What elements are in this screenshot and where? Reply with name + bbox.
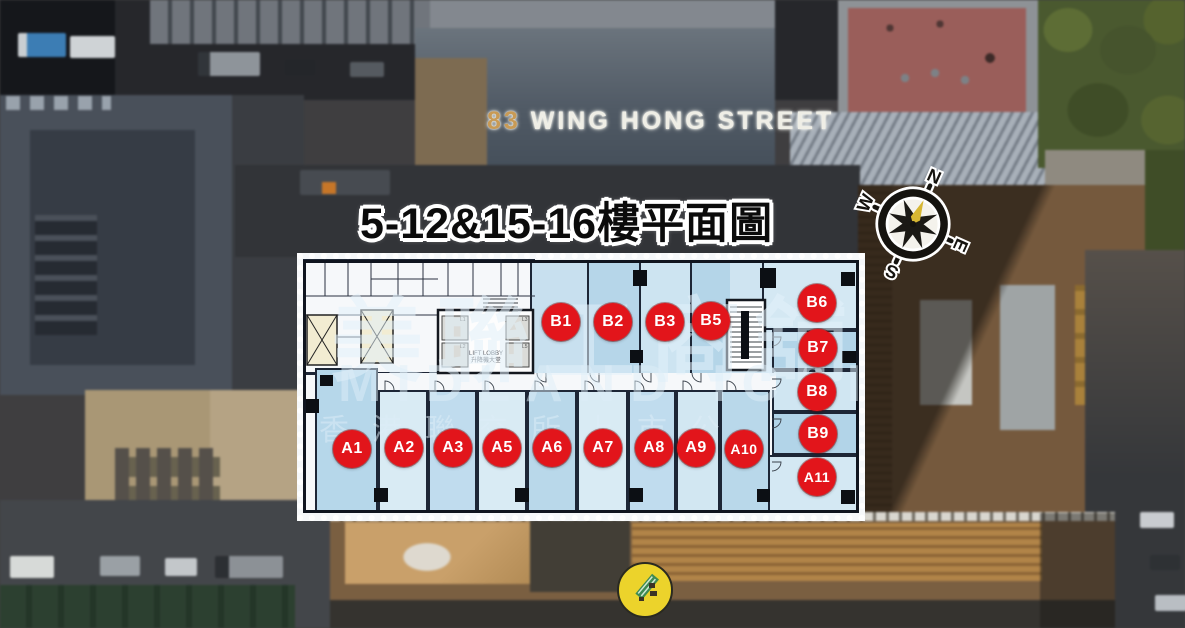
unit-badge-a10: A10 (725, 430, 763, 468)
photo-whs-scaffold (415, 58, 487, 168)
unit-badge-b1: B1 (542, 303, 580, 341)
photo-construction-dark-mid (530, 520, 630, 592)
photo-right-car-1 (1140, 512, 1174, 528)
page-title: 5-12&15-16樓平面圖 (360, 189, 773, 251)
lift-label: L5 (522, 345, 528, 350)
unit-badge-a11: A11 (798, 458, 836, 496)
unit-badge-a7: A7 (584, 429, 622, 467)
street-sign: 83 WING HONG STREET (487, 107, 834, 136)
photo-orange-machine (322, 182, 336, 194)
photo-construction-planks (632, 523, 1042, 581)
lift-lobby-label: LIFT LOBBY 升降機大堂 (453, 351, 519, 365)
photo-truck-2 (198, 52, 260, 76)
unit-badge-a9: A9 (677, 429, 715, 467)
photo-right-car-3 (1155, 595, 1185, 611)
photo-construction-sack (398, 540, 456, 574)
photo-terrace-furniture (870, 18, 1010, 98)
photo-roof-paint-marks (6, 96, 111, 110)
photo-green-roof (0, 585, 295, 628)
photo-car-2 (350, 62, 384, 77)
unit-badge-a3: A3 (434, 429, 472, 467)
photo-bottom-van (165, 558, 197, 576)
unit-badge-a5: A5 (483, 429, 521, 467)
photo-left-ac-units (35, 215, 97, 335)
street-sign-name: WING HONG STREET (531, 107, 835, 135)
unit-badge-a8: A8 (635, 429, 673, 467)
photo-white-truck (70, 36, 115, 58)
unit-badge-a2: A2 (385, 429, 423, 467)
lift-lobby-label-en: LIFT LOBBY (469, 351, 503, 357)
unit-badge-b5: B5 (692, 302, 730, 340)
photo-construction-bottom-dark (330, 600, 1115, 628)
lift-label: L2 (460, 345, 466, 350)
plan-linework (303, 259, 859, 515)
unit-badge-b6: B6 (798, 284, 836, 322)
unit-badge-b9: B9 (799, 415, 837, 453)
unit-badge-b8: B8 (798, 373, 836, 411)
photo-tan-ac-grid (115, 448, 220, 506)
photo-bottom-truck-1 (10, 556, 54, 578)
lift-label: L3 (522, 318, 528, 323)
unit-badge-b3: B3 (646, 303, 684, 341)
photo-right-car-2 (1150, 555, 1180, 570)
floorplan-overlay: LIFT LOBBY 升降機大堂 L1 L2 L3 L5 美聯工商舖 MIDLA… (297, 253, 865, 521)
lift-label: L1 (460, 318, 466, 323)
photo-trees-topright (1038, 0, 1185, 168)
street-sign-number: 83 (487, 107, 521, 135)
photo-top-building-band (150, 0, 430, 44)
photo-construction-shadow (1040, 513, 1115, 628)
unit-badge-a6: A6 (533, 429, 571, 467)
floorplan-aerial-screenshot: LIFT LOBBY 升降機大堂 L1 L2 L3 L5 美聯工商舖 MIDLA… (0, 0, 1185, 628)
site-marker-icon (616, 561, 674, 619)
lift-lobby-label-zh: 升降機大堂 (471, 358, 501, 364)
photo-bottom-truck-2 (100, 556, 140, 576)
photo-bottom-truck-3 (215, 556, 283, 578)
photo-blue-truck (18, 33, 66, 57)
photo-car-1 (285, 60, 315, 75)
photo-tan-roof-light (210, 390, 303, 510)
compass-rose: N E S W (850, 152, 976, 298)
unit-badge-b7: B7 (799, 329, 837, 367)
unit-badge-a1: A1 (333, 430, 371, 468)
unit-badge-b2: B2 (594, 303, 632, 341)
